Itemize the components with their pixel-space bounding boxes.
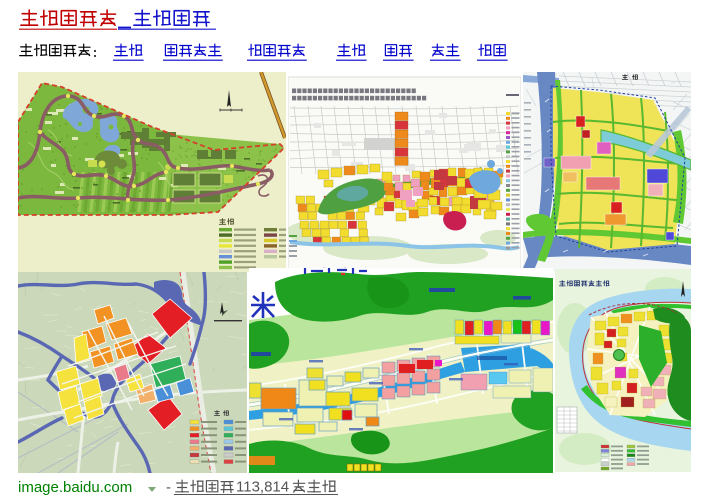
svg-text:113,814: 113,814 <box>236 479 289 496</box>
svg-text:-: - <box>166 479 171 496</box>
svg-text:image.baidu.com: image.baidu.com <box>18 479 132 496</box>
